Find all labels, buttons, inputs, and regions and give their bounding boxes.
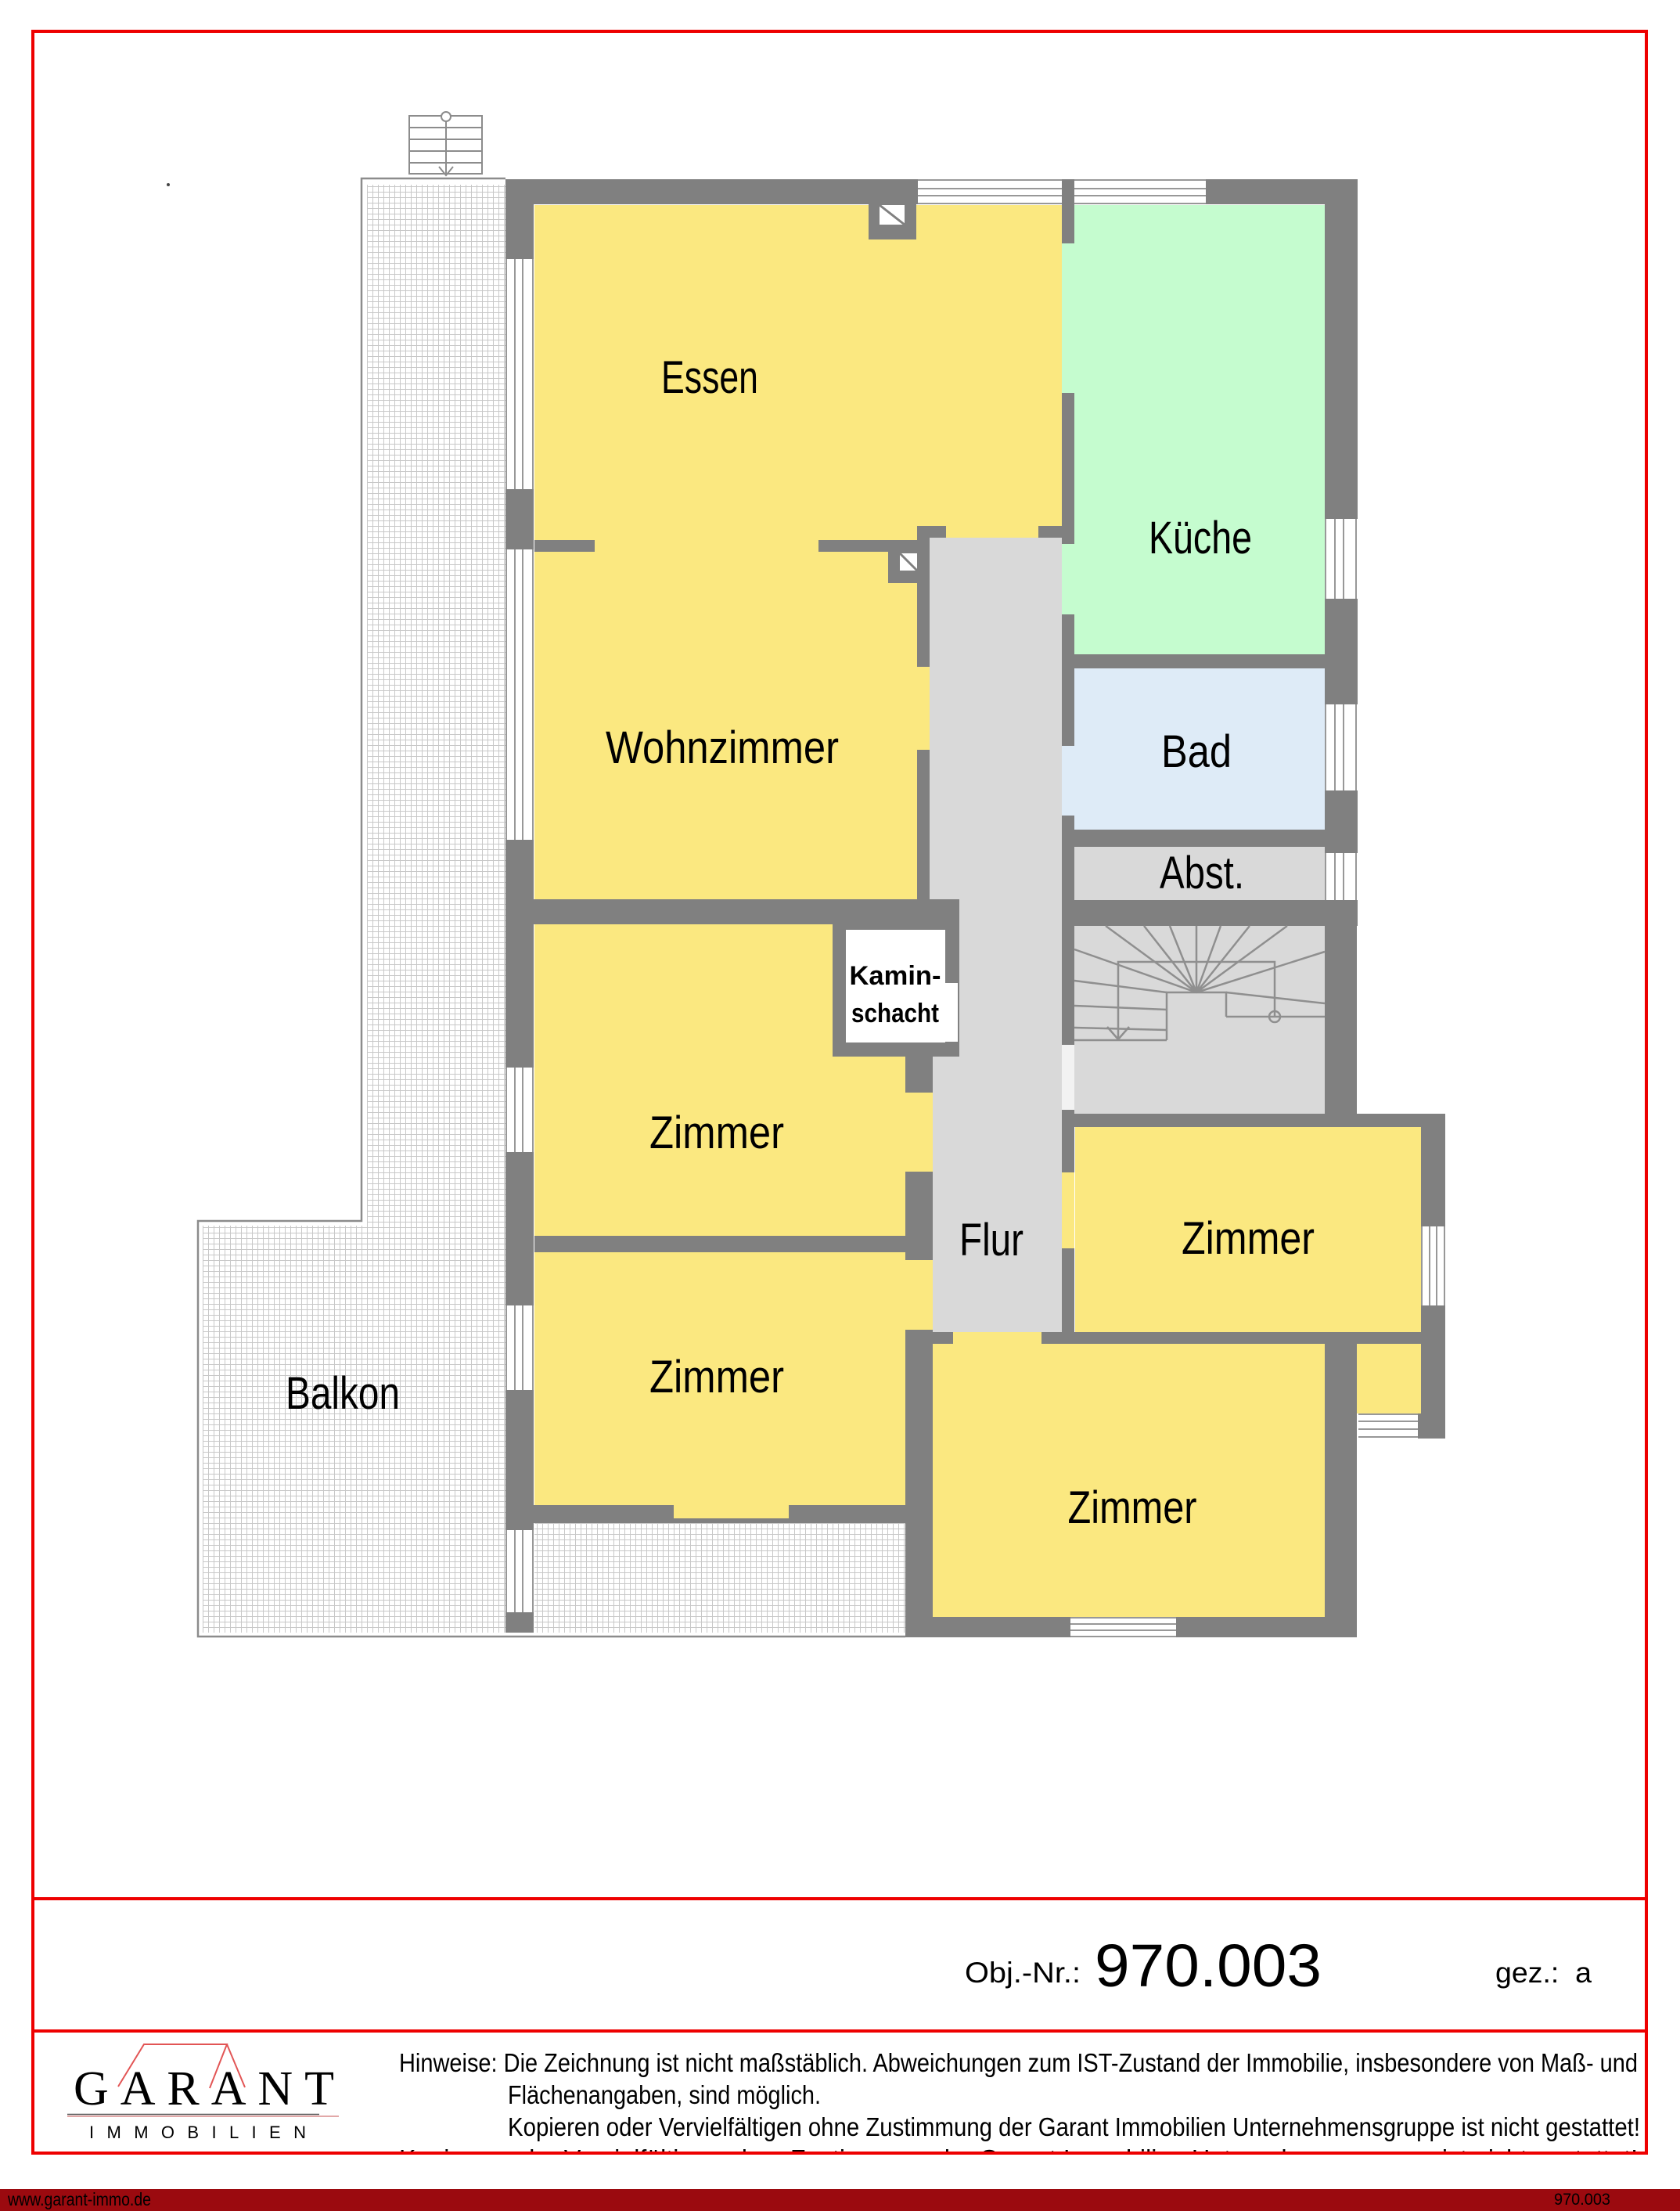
svg-text:Wohnzimmer: Wohnzimmer <box>606 722 839 773</box>
svg-text:Flur: Flur <box>959 1215 1023 1266</box>
svg-text:Hinweise: Die Zeichnung ist ni: Hinweise: Die Zeichnung ist nicht maßstä… <box>399 2048 1638 2077</box>
svg-text:www.garant-immo.de: www.garant-immo.de <box>7 2189 151 2209</box>
svg-text:Essen: Essen <box>661 352 758 403</box>
svg-text:Kamin-: Kamin- <box>850 961 941 991</box>
svg-text:Zimmer: Zimmer <box>1182 1213 1315 1264</box>
svg-text:Zimmer: Zimmer <box>649 1107 784 1158</box>
svg-text:Obj.-Nr.:: Obj.-Nr.: <box>965 1957 1081 1989</box>
svg-text:Küche: Küche <box>1149 513 1252 564</box>
svg-text:Kopieren oder Vervielfältigen: Kopieren oder Vervielfältigen ohne Zusti… <box>508 2112 1640 2141</box>
svg-text:Balkon: Balkon <box>286 1368 400 1419</box>
svg-text:Zimmer: Zimmer <box>649 1352 784 1403</box>
svg-text:Bad: Bad <box>1161 726 1232 777</box>
svg-text:schacht: schacht <box>851 999 939 1028</box>
svg-text:Abst.: Abst. <box>1160 848 1244 898</box>
svg-text:970.003: 970.003 <box>1095 1932 1322 2000</box>
svg-text:Flächenangaben, sind möglich.: Flächenangaben, sind möglich. <box>508 2080 821 2109</box>
svg-text:Zimmer: Zimmer <box>1068 1482 1197 1533</box>
svg-text:gez.: a: gez.: a <box>1495 1957 1592 1989</box>
svg-text:970.003: 970.003 <box>1554 2191 1610 2209</box>
